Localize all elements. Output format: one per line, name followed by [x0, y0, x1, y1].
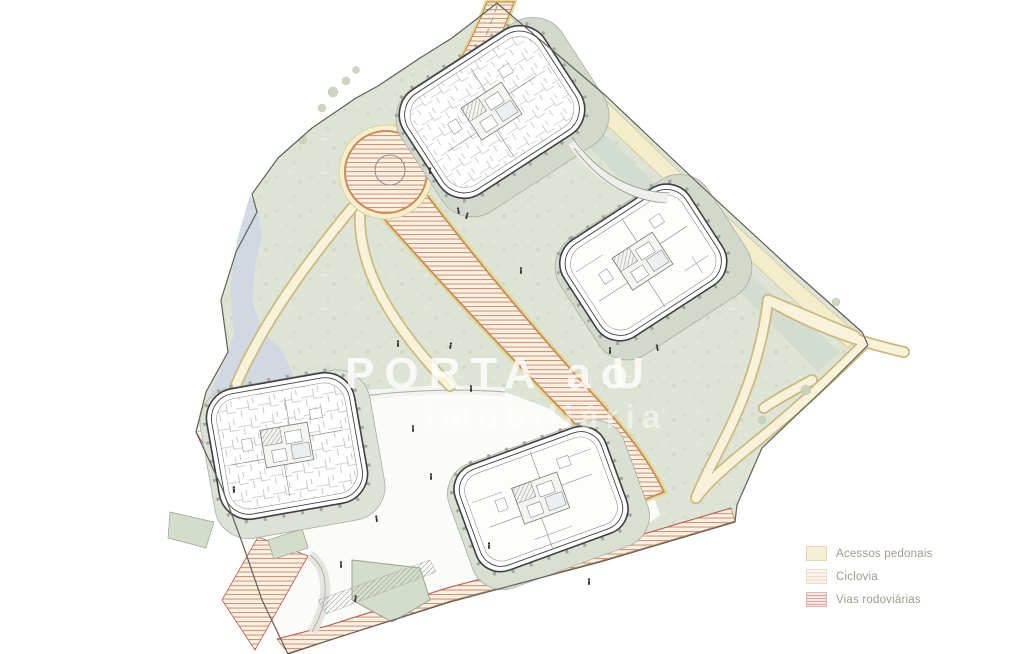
legend-item-ciclovia: Ciclovia: [806, 569, 986, 584]
legend: Acessos pedonais Ciclovia Vias rodoviári…: [806, 546, 986, 615]
legend-label-ciclovia: Ciclovia: [836, 571, 878, 583]
legend-swatch-roads: [806, 592, 827, 607]
site-plan-image: PORTA ao U imobiliária Acessos pedonais …: [0, 0, 1036, 654]
legend-swatch-pedestrian: [806, 546, 827, 561]
legend-swatch-ciclovia: [806, 569, 827, 584]
legend-item-pedestrian: Acessos pedonais: [806, 546, 986, 561]
legend-label-roads: Vias rodoviárias: [836, 594, 921, 606]
watermark-line2: imobiliária: [425, 398, 667, 435]
watermark-line1-cont: U: [612, 349, 654, 398]
legend-label-pedestrian: Acessos pedonais: [836, 548, 933, 560]
watermark-line1: PORTA ao: [345, 349, 638, 398]
legend-item-roads: Vias rodoviárias: [806, 592, 986, 607]
